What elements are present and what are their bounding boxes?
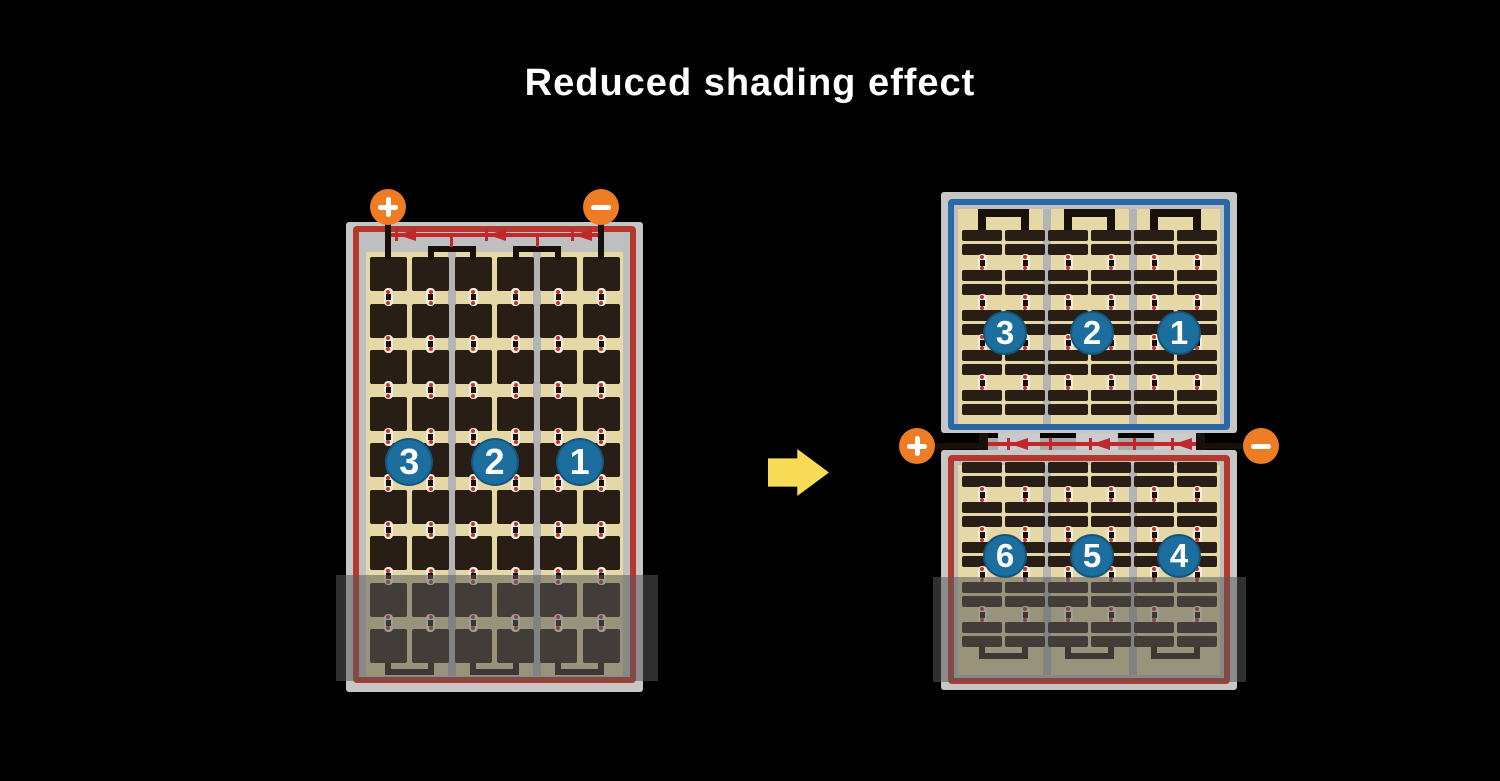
shading-layer	[0, 0, 1500, 781]
shading-overlay	[933, 577, 1246, 682]
shading-overlay	[336, 575, 658, 681]
figure-canvas: Reduced shading effect 321 321 654	[0, 0, 1500, 781]
